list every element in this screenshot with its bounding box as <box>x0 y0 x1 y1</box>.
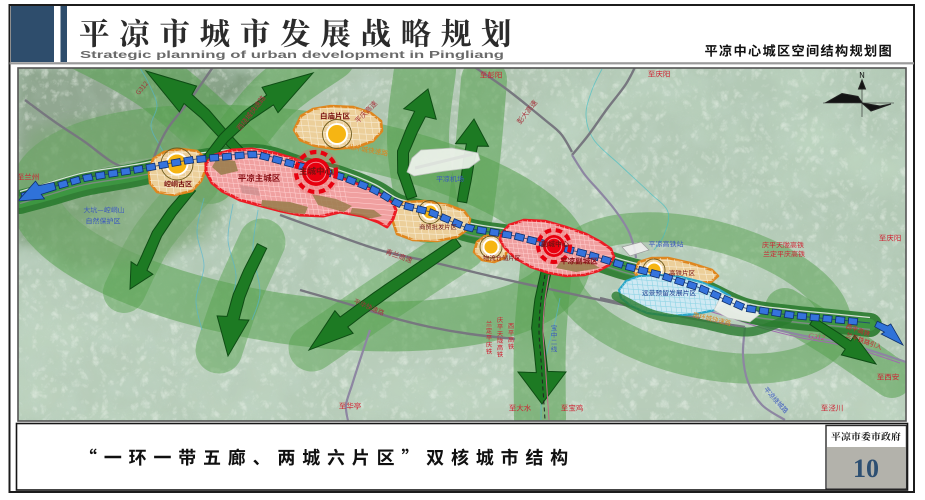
svg-text:10: 10 <box>853 454 879 483</box>
svg-text:Strategic planning of urban de: Strategic planning of urban development … <box>80 50 504 61</box>
